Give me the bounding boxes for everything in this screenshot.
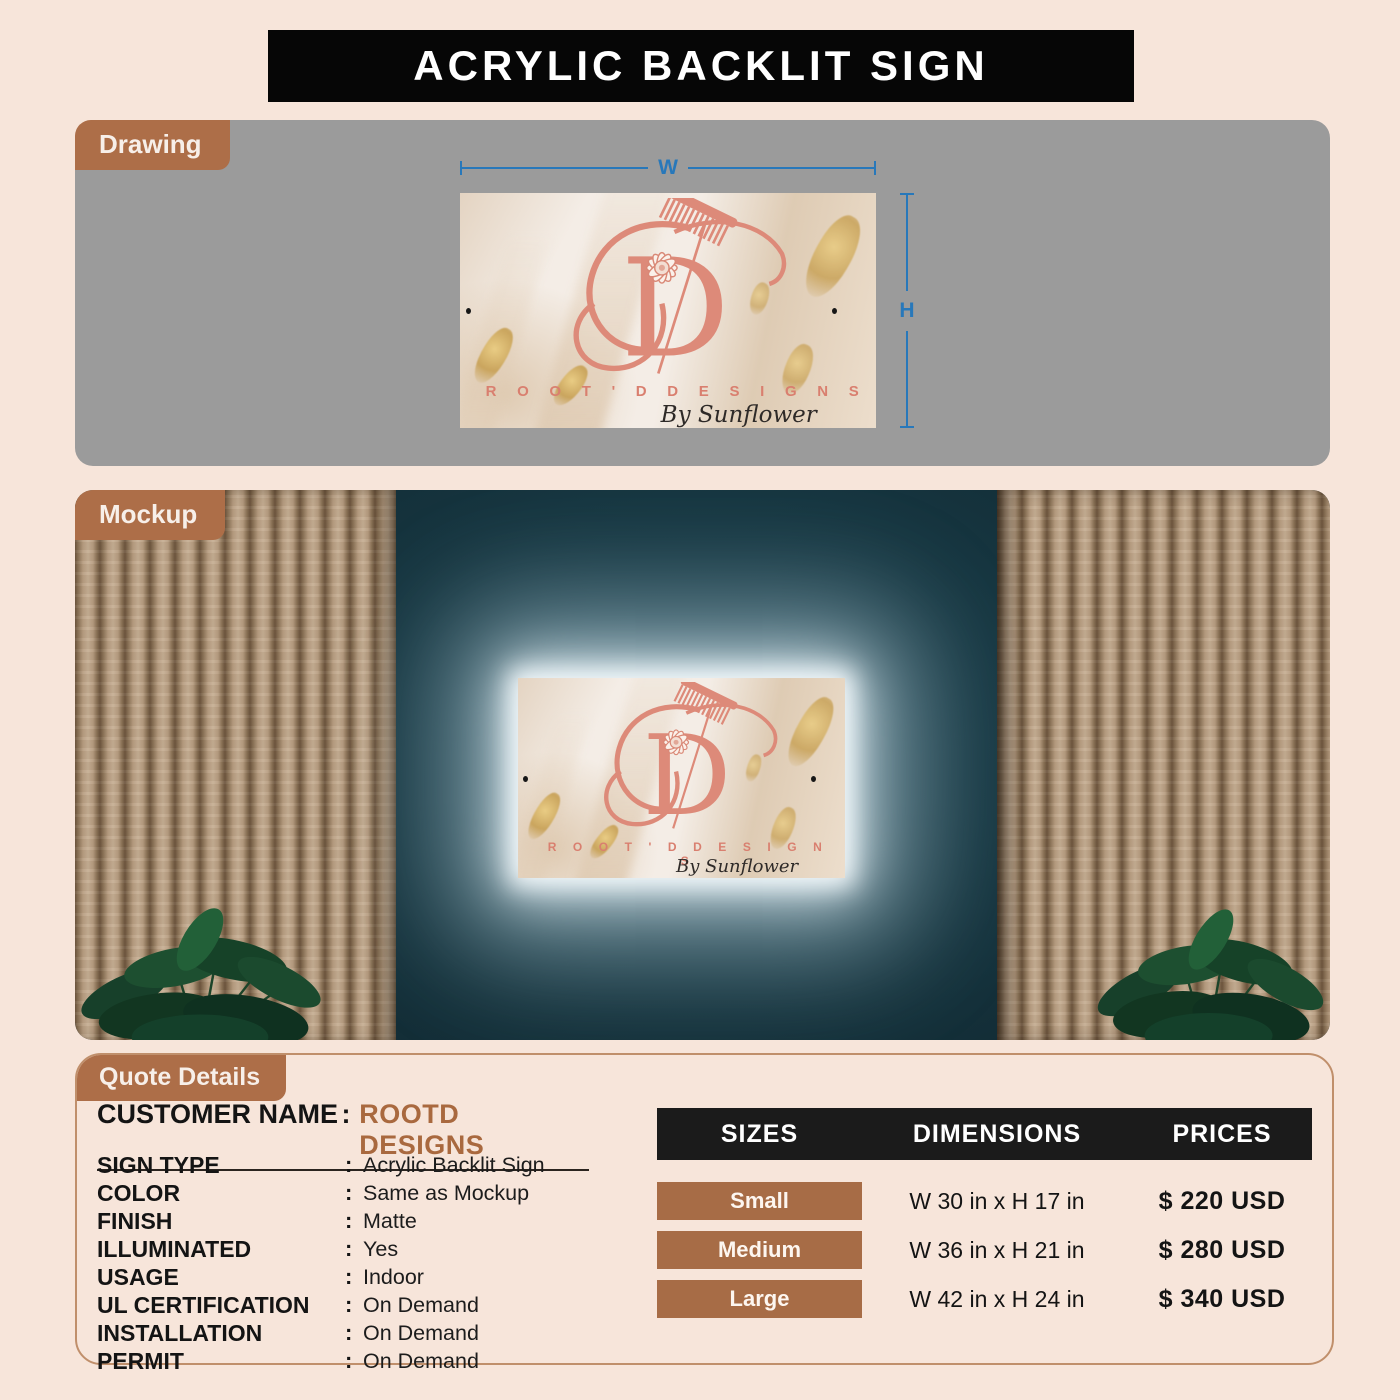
detail-value: Acrylic Backlit Sign [363,1153,637,1178]
pricing-table: SIZES DIMENSIONS PRICES Small W 30 in x … [657,1108,1312,1329]
potted-plant-right [1087,896,1327,1040]
screw-dot [466,308,471,314]
quote-sheet: ACRYLIC BACKLIT SIGN Drawing W H [0,0,1400,1400]
size-button-large[interactable]: Large [657,1280,862,1318]
tab-mockup: Mockup [75,490,225,540]
quote-details-section: Quote Details CUSTOMER NAME : ROOTD DESI… [75,1053,1334,1365]
separator-colon: : [345,1208,363,1234]
detail-row-permit: PERMIT : On Demand [97,1347,637,1375]
sign-artwork-mockup: D R O O T ' D D E S I G N S By Sunflower [518,678,845,878]
sign-byline-text: By Sunflower [601,402,876,428]
detail-label: UL CERTIFICATION [97,1292,345,1319]
detail-label: USAGE [97,1264,345,1291]
screw-dot [523,776,528,782]
sign-artwork-drawing: D R O O T ' D D E S I G N S By Sunflower [460,193,876,428]
separator-colon: : [345,1264,363,1290]
sign-brand-text: R O O T ' D D E S I G N S [485,383,868,400]
pricing-row-large: Large W 42 in x H 24 in $ 340 USD [657,1280,1312,1318]
detail-value: Indoor [363,1265,637,1290]
detail-label: COLOR [97,1180,345,1207]
separator-colon: : [342,1099,360,1130]
dimensions-value: W 30 in x H 17 in [862,1188,1132,1215]
potted-plant-left [75,896,325,1040]
dimension-line [906,195,908,291]
drawing-panel: Drawing W H [75,120,1330,466]
separator-colon: : [345,1152,363,1178]
screw-dot [832,308,837,314]
height-dimension-line: H [897,193,917,428]
detail-value: Matte [363,1209,637,1234]
width-dimension-line: W [460,158,876,178]
detail-row-sign-type: SIGN TYPE : Acrylic Backlit Sign [97,1151,637,1179]
dimensions-value: W 36 in x H 21 in [862,1237,1132,1264]
dimension-tick [874,161,876,175]
monogram-logo: D [552,198,793,386]
detail-value: Yes [363,1237,637,1262]
column-header-prices: PRICES [1132,1108,1312,1160]
height-dimension-label: H [899,299,914,323]
pricing-table-header: SIZES DIMENSIONS PRICES [657,1108,1312,1160]
pricing-table-rows: Small W 30 in x H 17 in $ 220 USD Medium… [657,1182,1312,1318]
detail-label: SIGN TYPE [97,1152,345,1179]
tab-drawing: Drawing [75,120,230,170]
detail-label: FINISH [97,1208,345,1235]
size-button-small[interactable]: Small [657,1182,862,1220]
monogram-logo: D [590,682,780,842]
column-header-dimensions: DIMENSIONS [862,1108,1132,1160]
gold-fleck [794,208,871,304]
page-title: ACRYLIC BACKLIT SIGN [413,42,988,90]
separator-colon: : [345,1348,363,1374]
size-button-medium[interactable]: Medium [657,1231,862,1269]
detail-row-installation: INSTALLATION : On Demand [97,1319,637,1347]
separator-colon: : [345,1236,363,1262]
pricing-row-medium: Medium W 36 in x H 21 in $ 280 USD [657,1231,1312,1269]
sign-byline-text: By Sunflower [629,856,845,877]
price-value: $ 340 USD [1132,1285,1312,1314]
dimension-tick [900,426,914,428]
dimension-line [906,331,908,427]
detail-row-usage: USAGE : Indoor [97,1263,637,1291]
tab-quote-details: Quote Details [77,1055,286,1101]
dimension-line [462,167,648,169]
detail-row-finish: FINISH : Matte [97,1207,637,1235]
separator-colon: : [345,1292,363,1318]
detail-row-color: COLOR : Same as Mockup [97,1179,637,1207]
dimensions-value: W 42 in x H 24 in [862,1286,1132,1313]
dimension-line [688,167,874,169]
title-banner: ACRYLIC BACKLIT SIGN [268,30,1134,102]
monogram-d: D [642,712,731,841]
detail-value: Same as Mockup [363,1181,637,1206]
customer-name-label: CUSTOMER NAME [97,1099,342,1130]
price-value: $ 220 USD [1132,1187,1312,1216]
price-value: $ 280 USD [1132,1236,1312,1265]
pricing-row-small: Small W 30 in x H 17 in $ 220 USD [657,1182,1312,1220]
detail-label: INSTALLATION [97,1320,345,1347]
gold-fleck [779,692,842,773]
monogram-d: D [620,230,729,385]
quote-details-list: SIGN TYPE : Acrylic Backlit Sign COLOR :… [97,1151,637,1375]
detail-label: PERMIT [97,1348,345,1375]
separator-colon: : [345,1320,363,1346]
detail-label: ILLUMINATED [97,1236,345,1263]
detail-value: On Demand [363,1321,637,1346]
detail-value: On Demand [363,1293,637,1318]
detail-row-illuminated: ILLUMINATED : Yes [97,1235,637,1263]
detail-row-ul-certification: UL CERTIFICATION : On Demand [97,1291,637,1319]
width-dimension-label: W [658,156,678,180]
mockup-panel: D R O O T ' D D E S I G N S By Sunflower [75,490,1330,1040]
detail-value: On Demand [363,1349,637,1374]
separator-colon: : [345,1180,363,1206]
column-header-sizes: SIZES [657,1108,862,1160]
screw-dot [811,776,816,782]
